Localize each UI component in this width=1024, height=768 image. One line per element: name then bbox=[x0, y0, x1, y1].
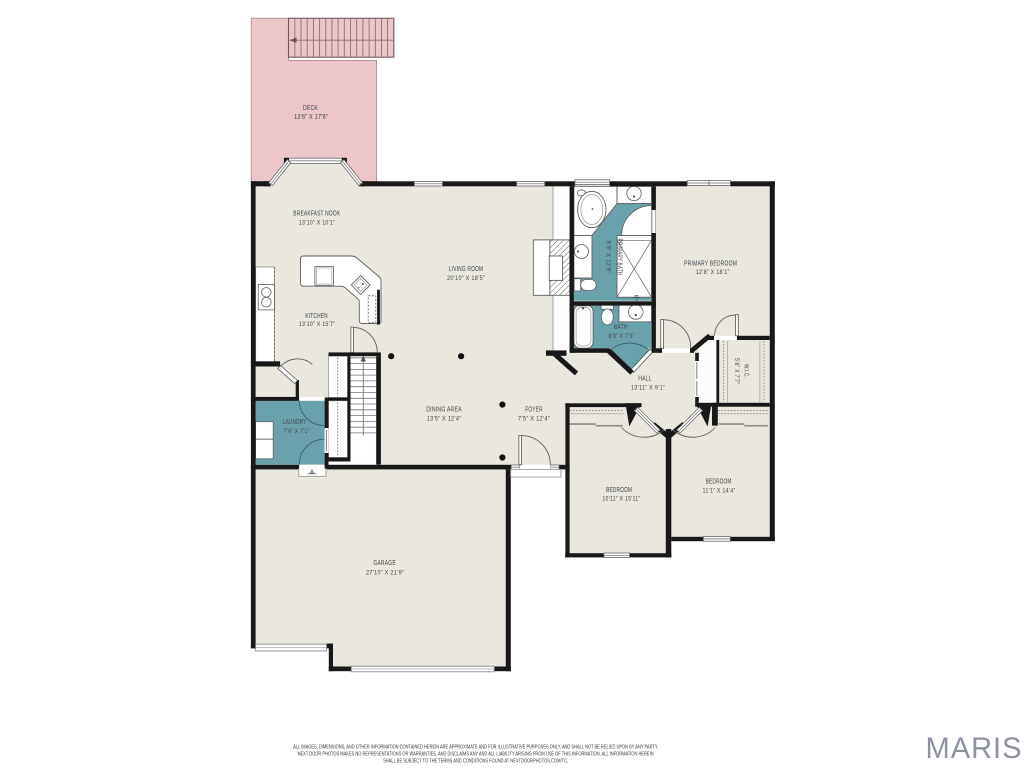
svg-text:SHALL BE SUBJECT TO THE TERMS: SHALL BE SUBJECT TO THE TERMS AND CONDIT… bbox=[383, 759, 568, 765]
svg-text:BATH: BATH bbox=[614, 322, 628, 331]
svg-text:NEXT DOOR PHOTOS MAKES NO REPR: NEXT DOOR PHOTOS MAKES NO REPRESENTATION… bbox=[298, 752, 654, 758]
svg-text:GARAGE: GARAGE bbox=[373, 558, 396, 567]
svg-text:13’10” X 15’7”: 13’10” X 15’7” bbox=[299, 321, 336, 328]
svg-text:8’9” X 12’9”: 8’9” X 12’9” bbox=[605, 241, 612, 274]
svg-text:20’10” X 18’5”: 20’10” X 18’5” bbox=[447, 275, 485, 282]
svg-text:PRIMARY BATH: PRIMARY BATH bbox=[615, 239, 624, 276]
svg-text:13’5” X 12’4”: 13’5” X 12’4” bbox=[427, 415, 462, 422]
svg-text:FOYER: FOYER bbox=[525, 404, 543, 413]
svg-text:LAUNDRY: LAUNDRY bbox=[283, 417, 307, 426]
svg-text:13’6” X 17’6”: 13’6” X 17’6” bbox=[294, 114, 328, 121]
svg-text:12’8” X 18’1”: 12’8” X 18’1” bbox=[696, 269, 730, 276]
svg-text:11’1” X 14’4”: 11’1” X 14’4” bbox=[703, 488, 736, 495]
svg-text:PRIMARY BEDROOM: PRIMARY BEDROOM bbox=[684, 258, 737, 267]
svg-text:ALL IMAGES, DIMENSIONS, AND OT: ALL IMAGES, DIMENSIONS, AND OTHER INFORM… bbox=[293, 745, 658, 751]
svg-text:13’10” X 10’1”: 13’10” X 10’1” bbox=[299, 220, 336, 227]
svg-text:BEDROOM: BEDROOM bbox=[606, 485, 632, 494]
svg-text:KITCHEN: KITCHEN bbox=[305, 311, 328, 320]
svg-text:MARIS: MARIS bbox=[926, 732, 1023, 765]
svg-text:LIVING ROOM: LIVING ROOM bbox=[449, 264, 484, 273]
svg-text:8’9” X 7’3”: 8’9” X 7’3” bbox=[609, 333, 635, 340]
svg-text:W.I.C.: W.I.C. bbox=[743, 364, 750, 378]
svg-text:7’5” X 12’4”: 7’5” X 12’4” bbox=[518, 415, 550, 422]
svg-text:DINING AREA: DINING AREA bbox=[426, 404, 462, 413]
svg-text:HALL: HALL bbox=[638, 373, 652, 382]
svg-text:5’6” X 7’7”: 5’6” X 7’7” bbox=[733, 358, 740, 384]
svg-text:27’10” X 21’9”: 27’10” X 21’9” bbox=[366, 569, 404, 576]
svg-text:BREAKFAST NOOK: BREAKFAST NOOK bbox=[293, 209, 340, 218]
svg-text:7’6” X 7’1”: 7’6” X 7’1” bbox=[284, 428, 310, 435]
svg-text:10’11” X 15’11”: 10’11” X 15’11” bbox=[602, 495, 640, 502]
svg-text:13’11” X 9’1”: 13’11” X 9’1” bbox=[631, 384, 665, 391]
svg-text:DECK: DECK bbox=[303, 103, 318, 112]
svg-text:BEDROOM: BEDROOM bbox=[706, 477, 732, 486]
